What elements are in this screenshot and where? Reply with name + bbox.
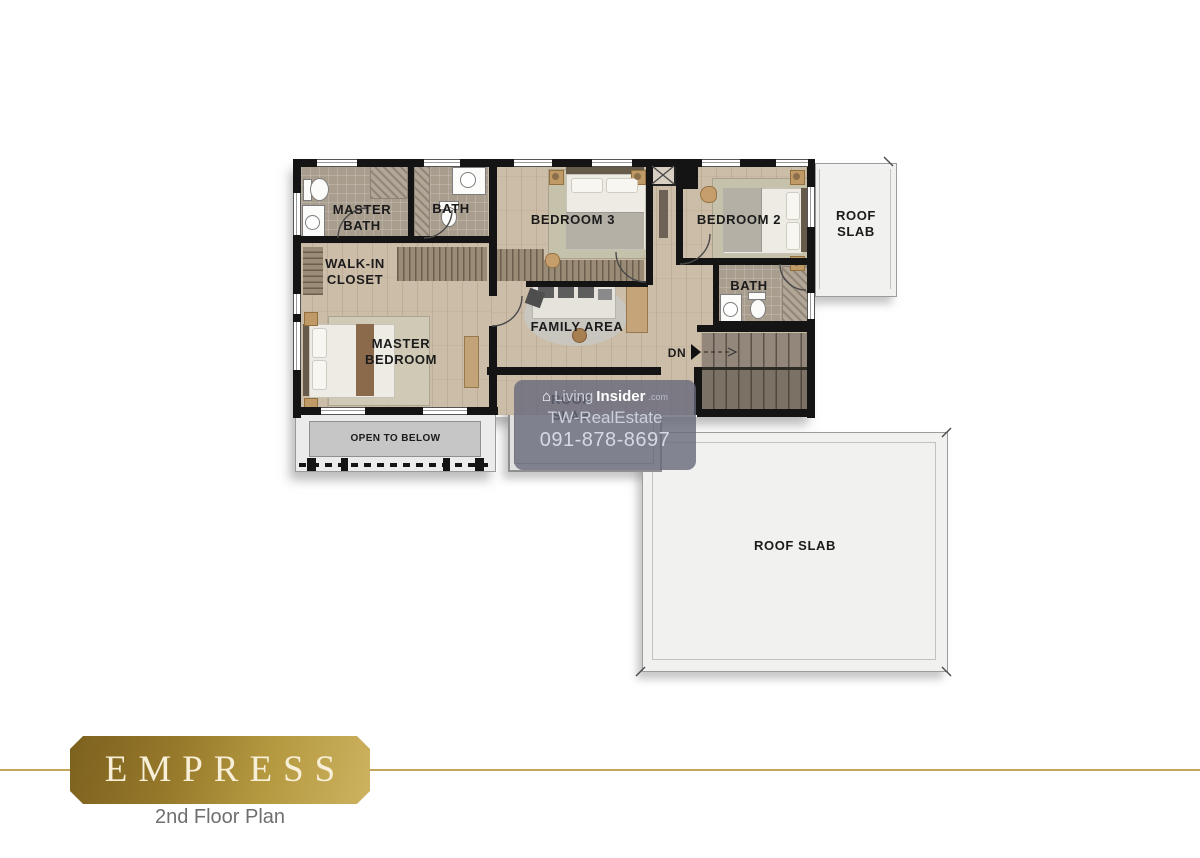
project-name-plaque: EMPRESS [70, 736, 370, 804]
stairs-dn-label: DN [664, 346, 690, 360]
wall-center-vertical-upper [489, 159, 497, 296]
window-left-3 [293, 322, 301, 370]
railing-post-4 [475, 458, 484, 471]
bath-top-label: BATH [418, 201, 484, 217]
family-area-label: FAMILY AREA [522, 319, 632, 335]
watermark: ⌂ LivingInsider.com TW-RealEstate 091-87… [514, 380, 696, 470]
watermark-phone: 091-878-8697 [540, 430, 671, 451]
stairs-down-arrow-icon [691, 344, 701, 360]
bedroom3-lamp-left [552, 173, 559, 180]
watermark-agency: TW-RealEstate [548, 409, 663, 427]
railing-post-1 [307, 458, 316, 471]
master-bath-shower [370, 165, 408, 199]
sofa-cushion-3 [578, 287, 594, 298]
watermark-brand-living: Living [554, 389, 593, 405]
wall-stairs-bottom [697, 409, 815, 417]
linen-closet [650, 164, 676, 186]
bedroom3-label: BEDROOM 3 [518, 212, 628, 228]
sofa-cushion-4 [598, 289, 612, 300]
stairs-lower-flight [702, 370, 807, 410]
master-nightstand-top [304, 312, 318, 326]
master-bath-label: MASTER BATH [312, 202, 412, 233]
bedroom2-label: BEDROOM 2 [684, 212, 794, 228]
wall-corridor-top-block [676, 161, 698, 189]
railing-post-2 [341, 458, 348, 471]
wall-bedroom3-corridor [646, 161, 653, 285]
window-top-1 [317, 159, 357, 167]
sofa-cushion-2 [558, 287, 574, 298]
livinginsider-logo-icon: ⌂ [542, 390, 551, 404]
window-top-2 [424, 159, 460, 167]
bedroom3-chair [545, 253, 560, 268]
project-name: EMPRESS [70, 736, 370, 804]
walk-in-closet-label: WALK-IN CLOSET [310, 256, 400, 287]
bedroom2-armchair [700, 186, 717, 203]
watermark-brand-tld: .com [648, 389, 668, 405]
railing-post-3 [443, 458, 450, 471]
window-bottom-2 [423, 407, 467, 415]
bath-right-sink [723, 302, 738, 317]
master-bedroom-dresser [464, 336, 479, 388]
roof-slab-large-label: ROOF SLAB [642, 538, 948, 554]
stairs-upper-flight [702, 333, 807, 368]
window-left-1 [293, 193, 301, 235]
wall-baths-bottom [293, 236, 496, 243]
wall-bedroom3-bottom [526, 281, 648, 287]
bedroom3-pillow-left [571, 178, 603, 193]
bedroom3-pillow-right [606, 178, 638, 193]
window-right-2 [807, 293, 815, 319]
window-top-3 [514, 159, 552, 167]
closet-wardrobe-center [397, 247, 487, 281]
stairs-landing-divider [702, 367, 807, 370]
master-bed-pillow-bottom [312, 360, 327, 390]
window-right-1 [807, 187, 815, 227]
floor-plan-page: { "plan": { "rooms": { "master_bath": "M… [0, 0, 1200, 858]
master-bath-toilet [310, 178, 329, 201]
bath-right-label: BATH [717, 278, 781, 294]
wall-stairs-top [697, 325, 815, 332]
open-to-below-label: OPEN TO BELOW [295, 433, 496, 445]
window-top-4 [592, 159, 632, 167]
master-bedroom-label: MASTER BEDROOM [350, 336, 452, 367]
window-bottom-1 [321, 407, 365, 415]
bedroom2-lamp-top [793, 173, 800, 180]
wall-bedroom2-bottom [676, 258, 815, 265]
roof-slab-top-right-label: ROOF SLAB [815, 208, 897, 239]
window-top-5 [702, 159, 740, 167]
watermark-brand-insider: Insider [596, 389, 645, 405]
wall-bath-right-left [713, 262, 719, 328]
wall-family-bottom [487, 367, 661, 375]
hallway-console [659, 190, 668, 238]
window-left-2 [293, 294, 301, 314]
open-to-below-railing [299, 463, 492, 467]
bath-top-sink [460, 172, 476, 188]
window-top-6 [776, 159, 808, 167]
bath-right-toilet [750, 299, 766, 319]
bedroom3-lamp-right [634, 173, 641, 180]
floor-plan-subtitle: 2nd Floor Plan [70, 806, 370, 829]
master-bed-pillow-top [312, 328, 327, 358]
watermark-brand-row: ⌂ LivingInsider.com [542, 389, 668, 405]
